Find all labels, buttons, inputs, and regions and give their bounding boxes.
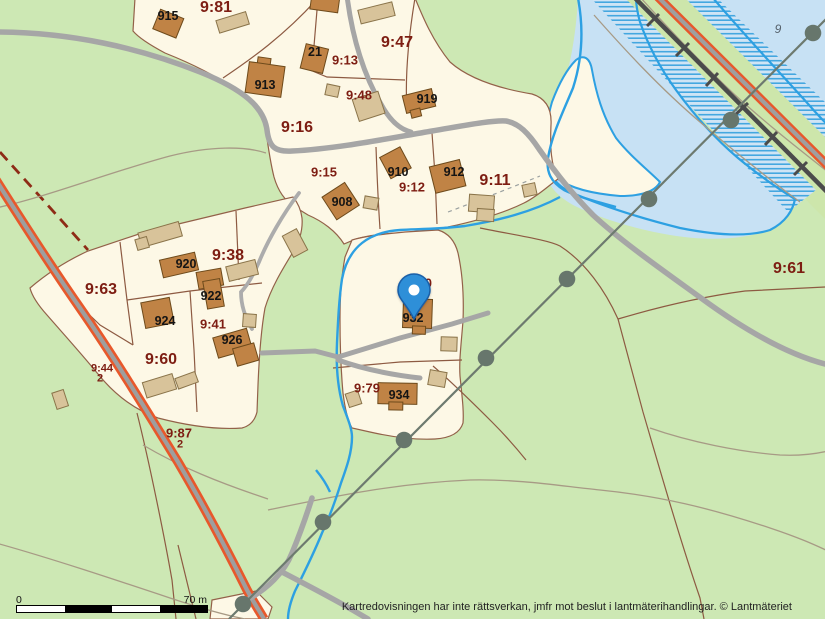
building-label: 910 [388,166,409,179]
building-label: 915 [158,10,179,23]
building-label: 924 [155,315,176,328]
building-label: 934 [389,389,410,402]
building-label: 912 [444,166,465,179]
district-label: 9 [775,23,782,35]
building-label: 908 [332,196,353,209]
parcel-label: 9:11 [479,173,510,189]
parcel-label: 2 [177,440,183,451]
parcel-label: 9:79 [354,382,380,395]
parcel-label: 2 [97,374,103,385]
parcel-label: 9:47 [381,35,413,51]
building-label: 21 [308,46,322,59]
parcel-label: 9:16 [281,120,313,136]
parcel-label: 9:12 [399,181,425,194]
scale-bar [16,605,208,613]
parcel-label: 9:61 [773,261,805,277]
location-pin-icon[interactable] [394,269,434,321]
parcel-label: 9:41 [200,318,226,331]
parcel-label: 9:15 [311,166,337,179]
parcel-label: 9:13 [332,54,358,67]
building-label: 913 [255,79,276,92]
parcel-label: 9:48 [346,89,372,102]
building-label: 922 [201,290,222,303]
attribution: Kartredovisningen har inte rättsverkan, … [342,601,792,613]
building-label: 920 [176,258,197,271]
parcel-label: 9:38 [212,248,244,264]
parcel-label: 9:81 [200,0,232,16]
building-label: 926 [222,334,243,347]
parcel-label: 9:63 [85,282,117,298]
parcel-label: 9:60 [145,352,177,368]
map-canvas[interactable]: 9:81 9:47 9:13 9:48 9:16 9:15 9:12 9:11 … [0,0,825,619]
building-label: 919 [417,93,438,106]
